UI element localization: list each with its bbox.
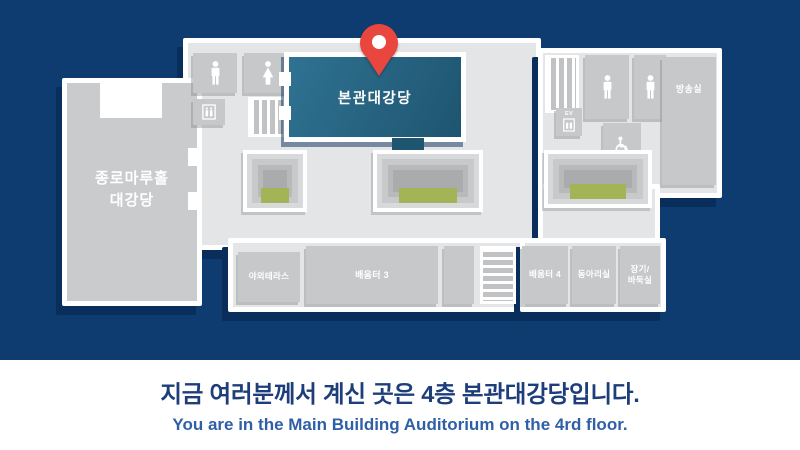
lightwell: [243, 150, 307, 212]
lightwell-floor: [399, 188, 457, 203]
room-restroom-men-2: [585, 55, 629, 119]
room-club: 동아리실: [572, 246, 616, 304]
caption-panel: 지금 여러분께서 계신 곳은 4층 본관대강당입니다. You are in t…: [0, 360, 800, 450]
lightwell-floor: [261, 188, 289, 203]
elevator-icon: [563, 118, 575, 132]
room-learning-3: 배움터 3: [306, 246, 438, 304]
you-are-here-pin: [360, 24, 398, 82]
female-restroom-icon: [261, 61, 275, 85]
room-jongno-maru-hall-label: 종로마루홀 대강당: [66, 168, 198, 212]
kiosk-screen: 종로마루홀 대강당 본관대강당: [0, 0, 800, 450]
auditorium-door: [279, 106, 291, 120]
room-outdoor-terrace: 야외테라스: [238, 252, 300, 302]
elevator-icon: [202, 104, 216, 120]
stairs-icon: [480, 246, 516, 304]
room-club-label: 동아리실: [578, 269, 610, 280]
map-pin-icon: [360, 24, 398, 62]
floor-map: 종로마루홀 대강당 본관대강당: [0, 0, 800, 360]
male-restroom-icon: [601, 75, 614, 99]
room-elevator: [193, 99, 225, 125]
headline-korean: 지금 여러분께서 계신 곳은 4층 본관대강당입니다.: [160, 375, 639, 409]
elevator-label: EV: [565, 112, 573, 118]
male-restroom-icon: [644, 75, 657, 99]
room-broadcast: 방송실: [662, 57, 716, 185]
room-learning-4-label: 배움터 4: [529, 269, 561, 280]
hall-door: [188, 148, 202, 166]
room-board-games-label: 장기/ 바둑실: [628, 264, 652, 287]
hall-stage-notch: [100, 78, 162, 118]
room-board-games: 장기/ 바둑실: [620, 246, 660, 304]
lightwell: [544, 150, 652, 208]
subtitle-english: You are in the Main Building Auditorium …: [172, 415, 627, 435]
male-restroom-icon: [209, 61, 222, 85]
room-elevator-2: EV: [556, 108, 582, 136]
room-main-auditorium-label: 본관대강당: [338, 87, 412, 108]
room-learning-4: 배움터 4: [522, 246, 568, 304]
lightwell: [373, 150, 483, 212]
room-learning-3-label: 배움터 3: [355, 269, 389, 281]
lightwell-floor: [570, 184, 626, 199]
room-outdoor-terrace-label: 야외테라스: [249, 271, 290, 282]
room-unlabeled: [444, 246, 474, 304]
room-broadcast-label: 방송실: [662, 83, 716, 95]
stairs-icon: [545, 55, 579, 113]
auditorium-door: [279, 72, 291, 86]
room-restroom-men: [193, 53, 237, 93]
